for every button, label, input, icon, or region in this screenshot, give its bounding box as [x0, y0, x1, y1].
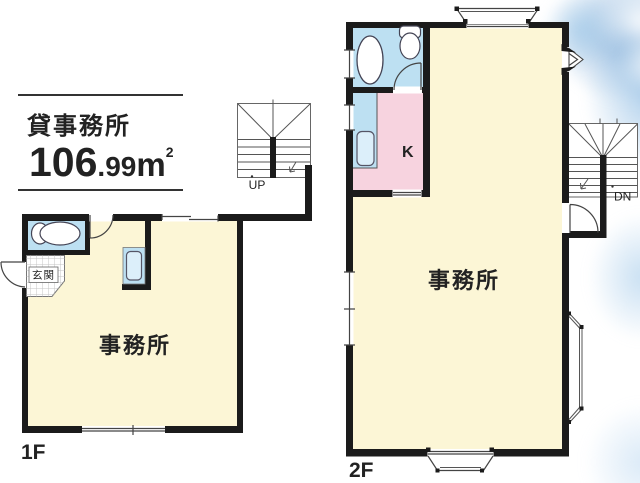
wall-segment: [562, 22, 569, 457]
corner-window: [562, 44, 584, 75]
stair-center-wall: [270, 137, 276, 178]
entrance-label: 玄関: [32, 269, 55, 282]
wall-segment: [600, 155, 607, 238]
property-type-label: 貸事務所: [27, 112, 131, 140]
title-block: 貸事務所 106.99m2: [18, 95, 183, 190]
wall-segment: [237, 214, 243, 433]
floor1-top-window: [162, 214, 218, 222]
floorplan-canvas: 貸事務所 106.99m2 UP: [0, 0, 640, 483]
kitchen-label: K: [402, 144, 415, 161]
toilet-icon: [32, 222, 81, 245]
floorplan-drawing: 貸事務所 106.99m2 UP: [0, 0, 640, 483]
right-bay-window: [567, 312, 584, 425]
wall-segment: [566, 231, 606, 238]
floor1-office-label: 事務所: [99, 333, 171, 358]
area-value: 106.99m2: [29, 139, 174, 185]
toilet-icon: [400, 26, 421, 59]
bathtub-icon: [357, 36, 383, 84]
stairs-up-label: UP: [249, 178, 266, 192]
door-swing-arc: [1, 262, 25, 287]
wall-segment: [423, 22, 430, 197]
stair-dot: [611, 185, 613, 187]
floor2-office-label: 事務所: [428, 268, 500, 293]
water-heater-icon: [123, 248, 145, 285]
wall-segment: [346, 22, 569, 28]
floor1-staircase: UP: [238, 100, 311, 193]
wall-segment: [305, 165, 312, 221]
floor2-label: 2F: [349, 459, 374, 482]
top-bay-window: [455, 7, 540, 29]
floor2-plan: DN: [344, 7, 638, 483]
wall-segment: [122, 284, 151, 290]
kitchen-opening: [393, 190, 422, 198]
stairs-down-label: DN: [614, 190, 631, 204]
wall-segment: [22, 214, 28, 433]
bottom-bay-window: [426, 448, 494, 473]
wall-segment: [145, 221, 151, 290]
wall-segment: [22, 250, 90, 255]
floor1-bottom-window: [82, 425, 165, 435]
floor1-label: 1F: [21, 441, 46, 464]
entrance-door: [1, 262, 29, 288]
sink-icon: [357, 132, 374, 166]
